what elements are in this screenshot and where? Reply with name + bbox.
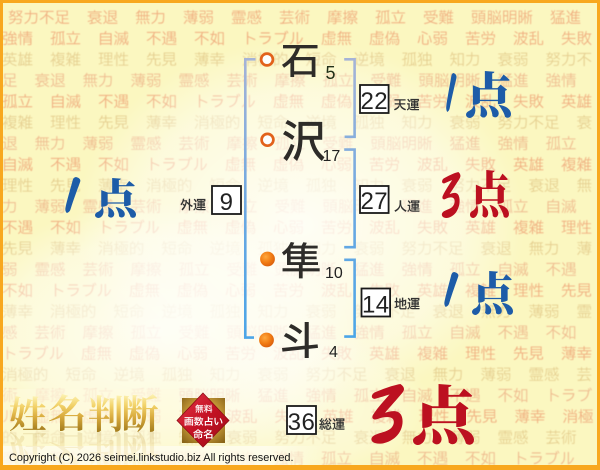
svg-text:Copyright (C) 2026 seimei.link: Copyright (C) 2026 seimei.linkstudio.biz… (9, 452, 294, 464)
svg-text:36: 36 (288, 409, 316, 436)
svg-text:17: 17 (323, 148, 341, 165)
svg-text:10: 10 (325, 265, 343, 282)
svg-text:14: 14 (362, 292, 390, 319)
svg-text:27: 27 (360, 188, 388, 215)
svg-text:22: 22 (360, 88, 388, 115)
svg-text:4: 4 (329, 344, 338, 361)
svg-text:5: 5 (326, 63, 336, 83)
svg-text:9: 9 (220, 189, 234, 216)
